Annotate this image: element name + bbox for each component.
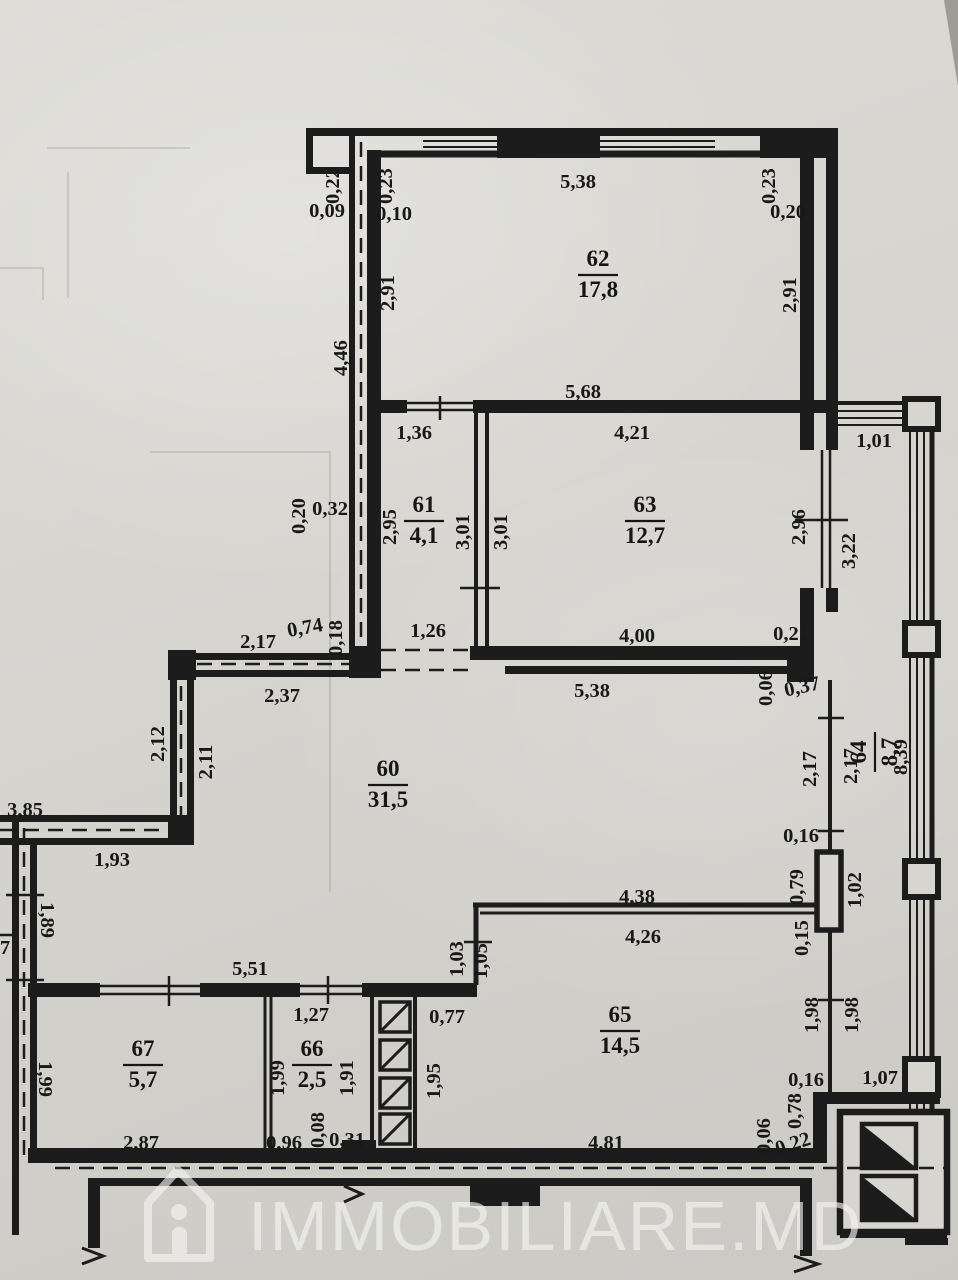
dimension-label: 5,68 (565, 381, 601, 403)
window-block-64 (817, 852, 841, 930)
room-label: 6514,5 (600, 1002, 640, 1058)
dimension-label: 4,21 (614, 422, 650, 444)
ghost-lines (0, 148, 330, 892)
dimension-label: 1,27 (293, 1004, 329, 1026)
dimension-label: 7 (0, 937, 10, 959)
room-area: 31,5 (368, 787, 408, 812)
dimension-label: 0,23 (758, 168, 780, 204)
dimension-label: 4,00 (619, 625, 655, 647)
dimension-label: 1,01 (856, 430, 892, 452)
dimension-label: 2,12 (147, 726, 169, 762)
room-area: 4,1 (410, 523, 439, 548)
room-number: 63 (634, 492, 657, 517)
room-area: 8,7 (877, 738, 902, 767)
dimension-label: 1,99 (267, 1060, 289, 1096)
dimension-label: 3,01 (452, 514, 474, 550)
room-label: 6217,8 (578, 246, 618, 302)
dimension-label: 0,15 (791, 920, 813, 956)
dimension-label: 5,38 (560, 171, 596, 193)
room-label: 662,5 (292, 1036, 332, 1092)
dimension-label: 5,38 (574, 680, 610, 702)
room-label: 675,7 (123, 1036, 163, 1092)
dimension-label: 1,98 (801, 997, 823, 1033)
dimension-label: 1,89 (36, 902, 58, 938)
dimension-label: 0,16 (783, 825, 819, 847)
dimension-label: 1,98 (841, 997, 863, 1033)
dimension-label: 3,01 (490, 514, 512, 550)
room-area: 17,8 (578, 277, 618, 302)
dimension-label: 0,08 (307, 1112, 329, 1148)
dimension-label: 2,11 (195, 745, 217, 780)
dimension-label: 1,99 (34, 1061, 56, 1097)
dimension-label: 2,95 (379, 509, 401, 545)
room-number: 62 (587, 246, 610, 271)
dimension-label: 5,51 (232, 958, 268, 980)
dimension-label: 1,05 (470, 943, 492, 979)
dimension-label: 4,81 (588, 1132, 624, 1154)
floorplan-svg: 0,220,090,230,105,380,230,202,912,914,46… (0, 0, 958, 1280)
dimension-label: 1,36 (396, 422, 432, 444)
dimension-label: 0,09 (309, 200, 345, 222)
partition-61-63 (476, 413, 487, 648)
dimension-label: 0,32 (312, 498, 348, 520)
dimension-label: 1,91 (336, 1060, 358, 1096)
dimension-label: 0,06 (755, 670, 777, 706)
dimension-label: 0,77 (429, 1006, 465, 1028)
dimension-label: 0,78 (784, 1093, 806, 1129)
dimension-label: 0,20 (288, 498, 310, 534)
dimension-label: 0,21 (773, 623, 809, 645)
scan-shadow (944, 0, 958, 86)
dimension-label: 0,74 (285, 614, 324, 642)
dimension-label: 0,31 (329, 1129, 365, 1151)
dimension-label: 2,91 (779, 277, 801, 313)
dimension-label: 0,96 (266, 1132, 302, 1154)
dimension-label: 4,26 (625, 926, 661, 948)
brand-text: IMMOBILIARE.MD (248, 1187, 863, 1265)
room-number: 65 (609, 1002, 632, 1027)
room-number: 61 (413, 492, 436, 517)
duct-squares (380, 1002, 410, 1144)
room-number: 64 (846, 740, 871, 764)
dimension-label: 4,46 (330, 340, 352, 376)
floorplan-page: 0,220,090,230,105,380,230,202,912,914,46… (0, 0, 958, 1280)
dimension-label: 1,03 (446, 941, 468, 977)
dimension-label: 2,17 (799, 751, 821, 787)
room-area: 12,7 (625, 523, 665, 548)
dimension-label: 0,10 (376, 203, 412, 225)
dimension-label: 1,95 (423, 1063, 445, 1099)
room-area: 14,5 (600, 1033, 640, 1058)
dimension-label: 2,17 (240, 631, 276, 653)
dimension-label: 0,22 (322, 168, 344, 204)
dimension-label: 0,06 (753, 1118, 775, 1154)
dimension-label: 1,02 (844, 872, 866, 908)
room-label: 614,1 (404, 492, 444, 548)
room-label: 6312,7 (625, 492, 665, 548)
room-number: 67 (132, 1036, 155, 1061)
room-label: 6031,5 (368, 756, 408, 812)
dimension-label: 1,07 (862, 1067, 898, 1089)
dimension-label: 2,37 (264, 685, 300, 707)
dimension-label: 2,87 (123, 1132, 159, 1154)
dimension-label: 0,18 (325, 620, 347, 656)
room-number: 66 (301, 1036, 324, 1061)
dimension-label: 1,93 (94, 849, 130, 871)
dimension-label: 2,96 (788, 509, 810, 545)
dimension-label: 0,79 (786, 869, 808, 905)
room-area: 5,7 (129, 1067, 158, 1092)
dimension-label: 3,22 (838, 533, 860, 569)
dimension-label: 0,20 (770, 201, 806, 223)
dimension-label: 1,26 (410, 620, 446, 642)
dimension-label: 4,38 (619, 886, 655, 908)
dimension-label: 2,91 (377, 275, 399, 311)
dimension-label: 3,85 (7, 799, 43, 821)
labels-layer: 0,220,090,230,105,380,230,202,912,914,46… (0, 168, 912, 1160)
dimension-label: 0,16 (788, 1069, 824, 1091)
room-area: 2,5 (298, 1067, 327, 1092)
room-number: 60 (377, 756, 400, 781)
dimension-label: 0,23 (375, 168, 397, 204)
